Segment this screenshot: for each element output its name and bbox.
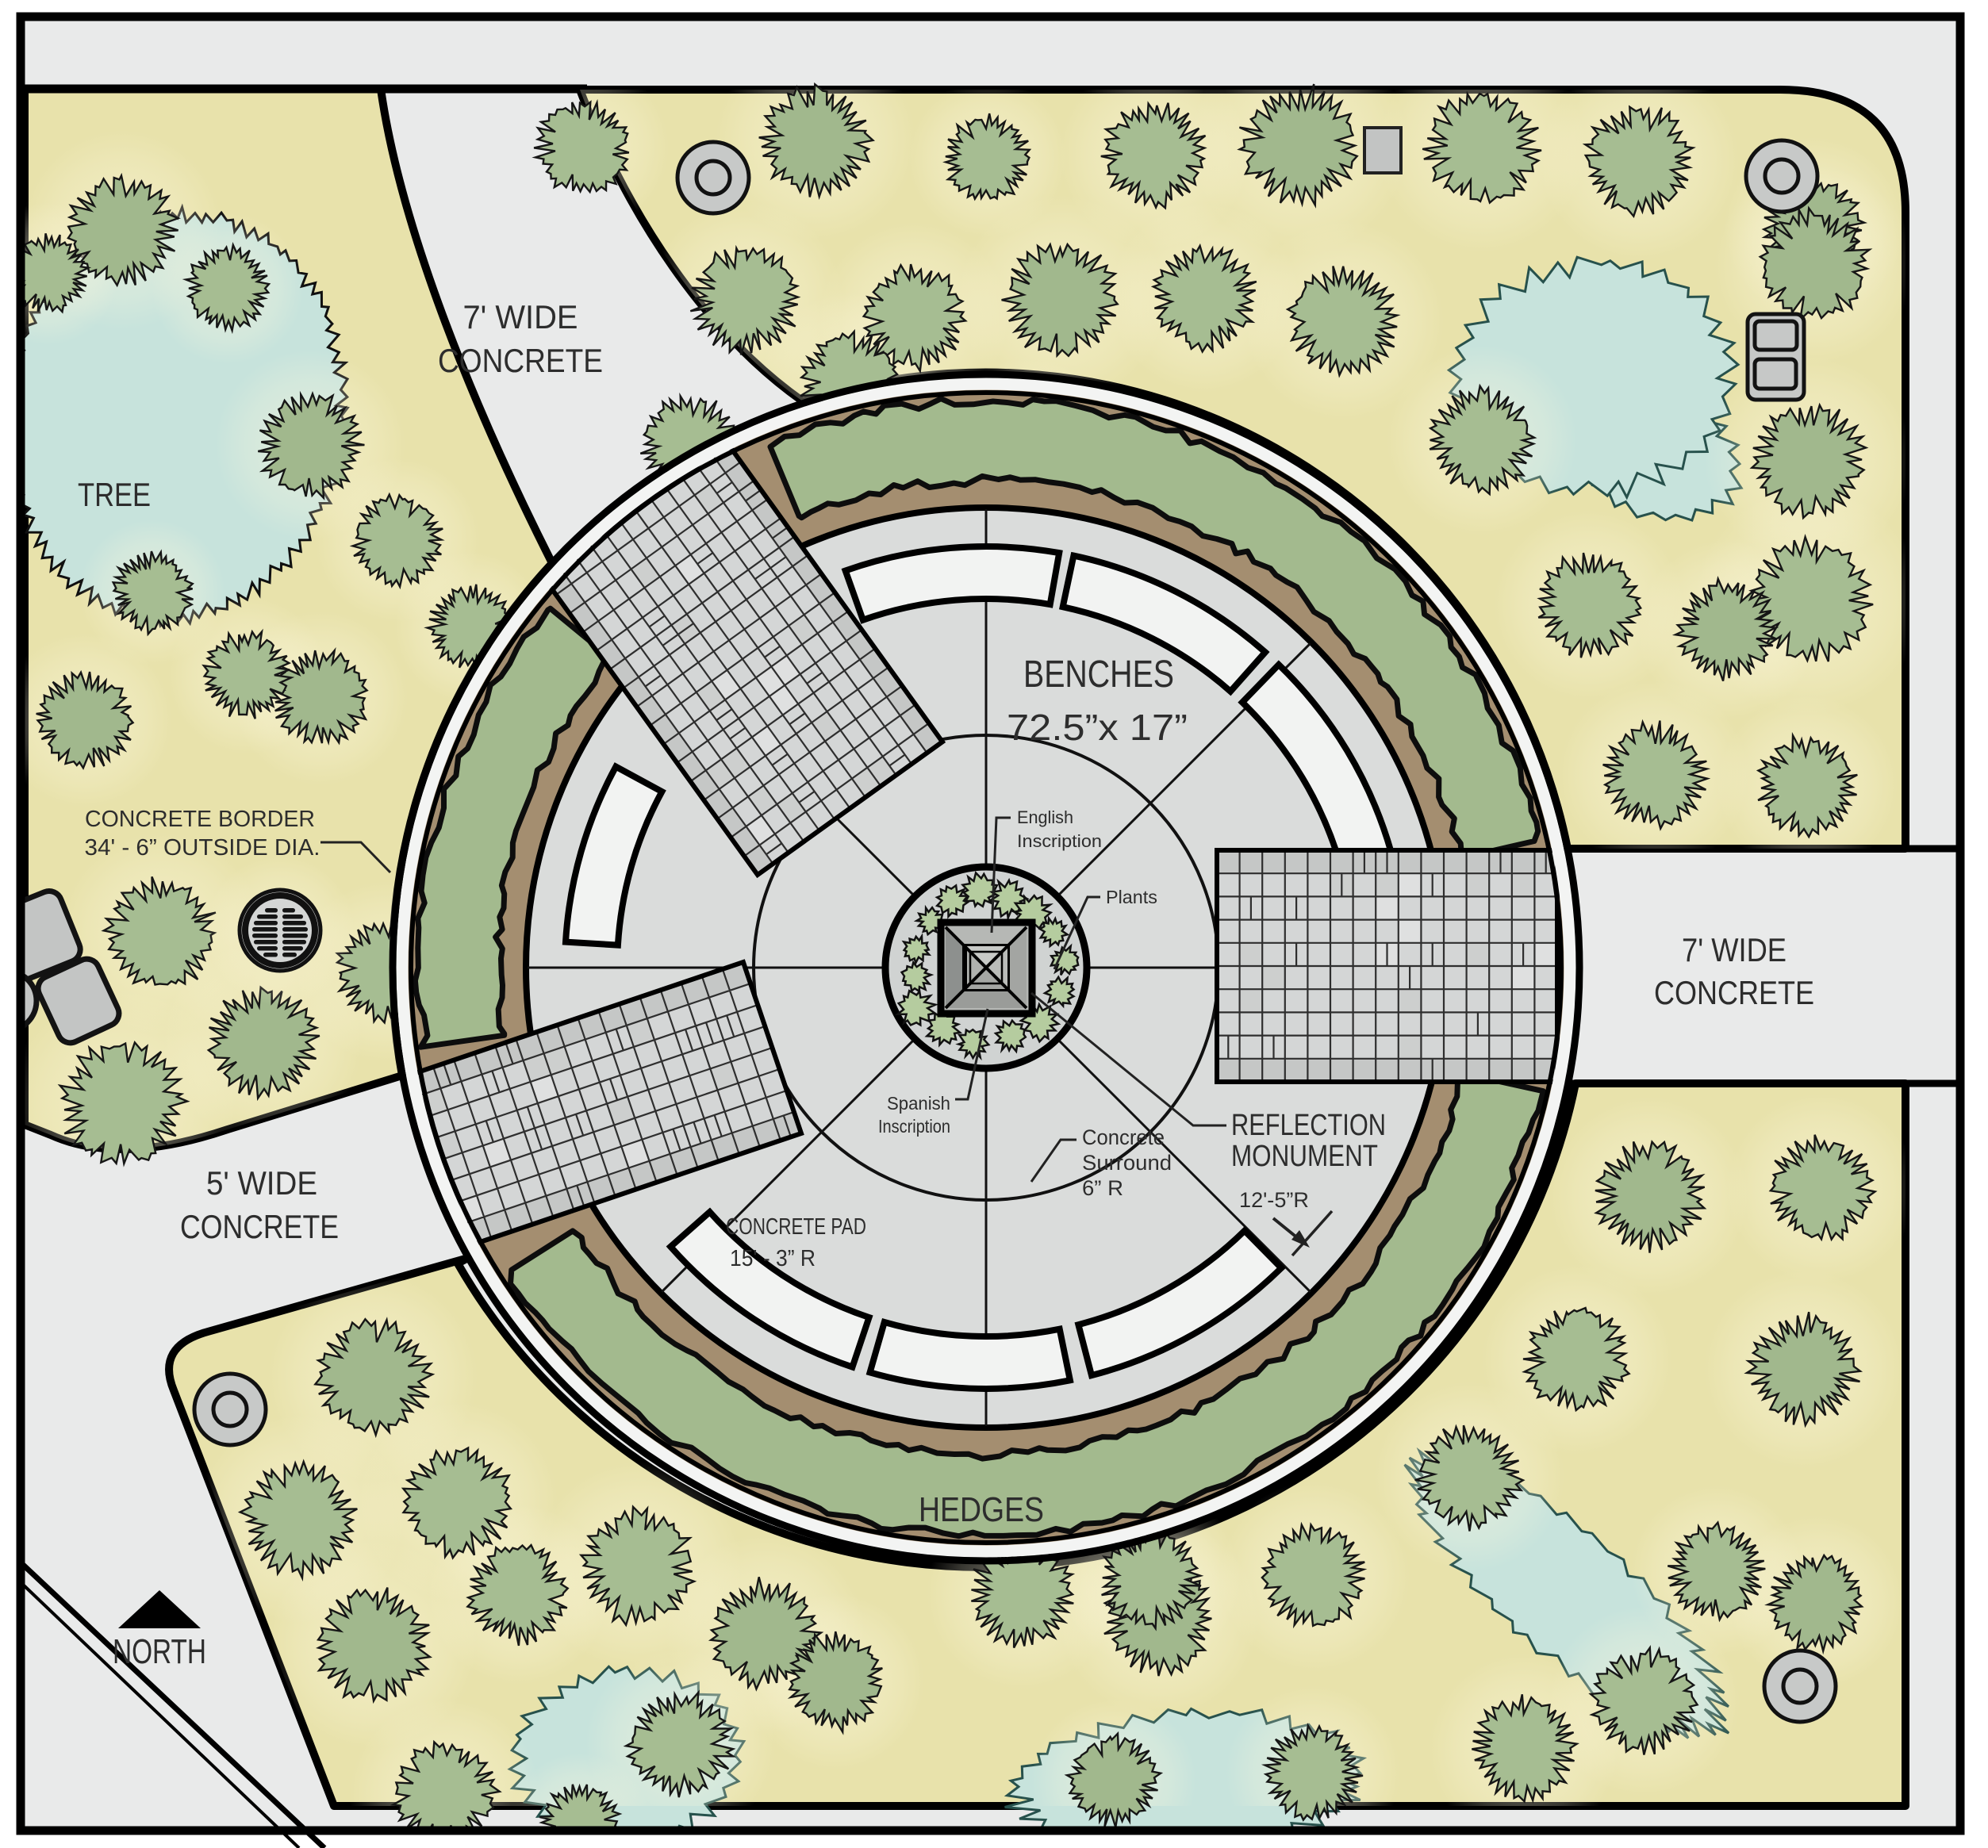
svg-text:NORTH: NORTH [113, 1632, 206, 1671]
svg-text:7' WIDE: 7' WIDE [463, 298, 578, 335]
svg-text:BENCHES: BENCHES [1023, 654, 1174, 696]
svg-text:CONCRETE: CONCRETE [180, 1208, 339, 1245]
svg-text:Spanish: Spanish [887, 1093, 950, 1114]
svg-text:7' WIDE: 7' WIDE [1682, 931, 1787, 968]
svg-text:CONCRETE BORDER: CONCRETE BORDER [85, 807, 315, 832]
svg-text:72.5”x 17”: 72.5”x 17” [1007, 707, 1188, 748]
svg-text:MONUMENT: MONUMENT [1231, 1140, 1378, 1173]
svg-text:CONCRETE: CONCRETE [438, 342, 603, 379]
svg-text:TREE: TREE [78, 476, 151, 513]
svg-text:Inscription: Inscription [1017, 831, 1102, 851]
svg-text:15' - 3” R: 15' - 3” R [730, 1246, 816, 1271]
svg-text:12'-5”R: 12'-5”R [1239, 1188, 1309, 1212]
svg-text:6” R: 6” R [1082, 1176, 1123, 1200]
svg-text:Inscription: Inscription [878, 1116, 950, 1137]
svg-text:34' - 6” OUTSIDE DIA.: 34' - 6” OUTSIDE DIA. [85, 835, 320, 861]
svg-text:CONCRETE: CONCRETE [1654, 974, 1814, 1011]
svg-text:CONCRETE PAD: CONCRETE PAD [726, 1214, 866, 1240]
svg-text:HEDGES: HEDGES [919, 1490, 1044, 1529]
svg-text:Surround: Surround [1082, 1151, 1172, 1175]
svg-text:Plants: Plants [1106, 887, 1157, 907]
svg-text:5' WIDE: 5' WIDE [206, 1164, 317, 1202]
svg-text:REFLECTION: REFLECTION [1231, 1109, 1386, 1142]
svg-text:English: English [1017, 807, 1073, 827]
svg-text:Concrete: Concrete [1082, 1125, 1165, 1149]
